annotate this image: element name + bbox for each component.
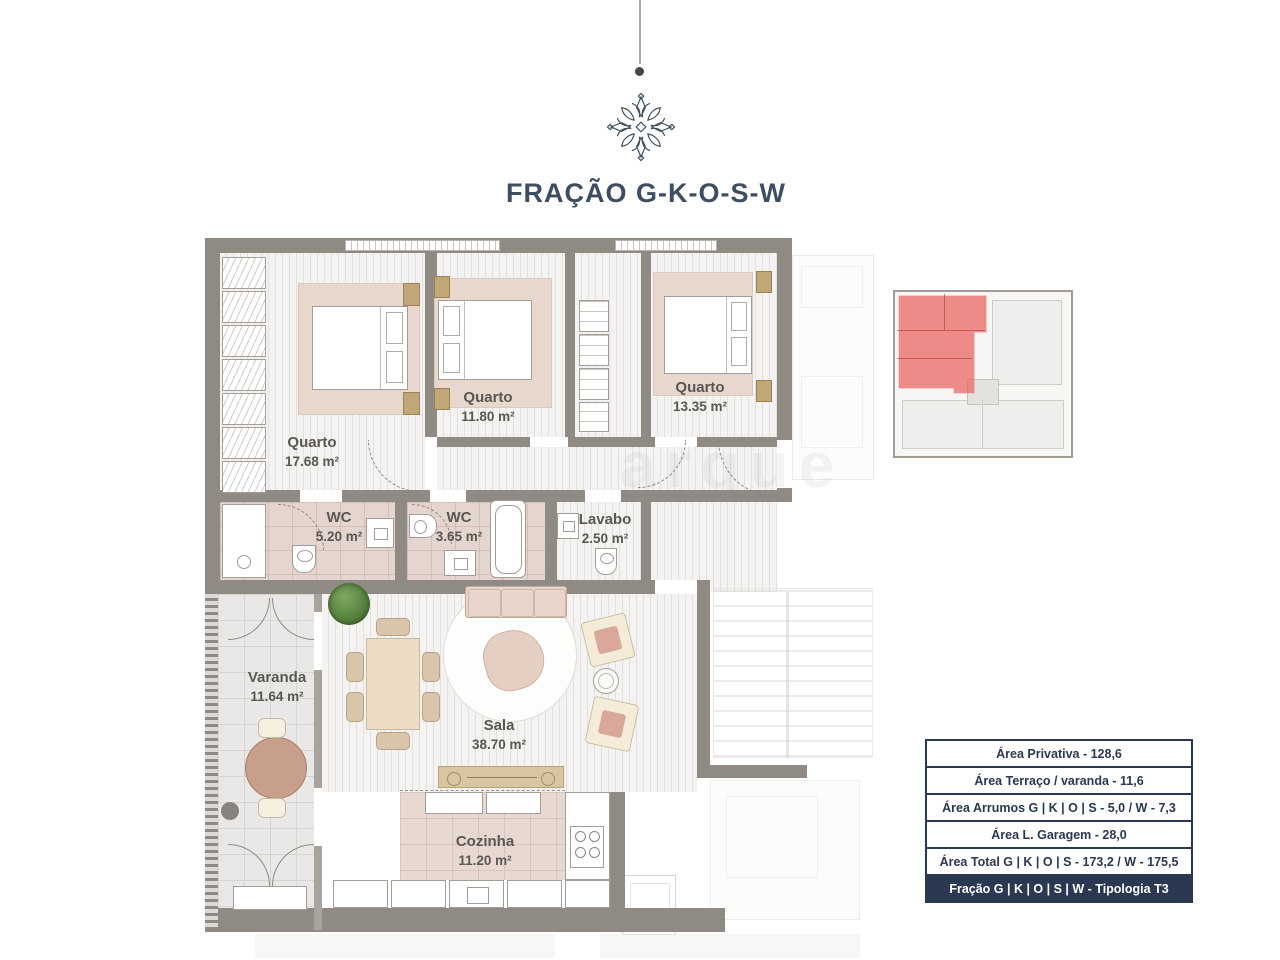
- armchair: [585, 696, 640, 753]
- key-plan-divider: [982, 400, 983, 449]
- wall-closet-left: [565, 253, 575, 437]
- vanity: [444, 550, 476, 576]
- room-name: Quarto: [287, 434, 336, 451]
- entry-hall-floor: [651, 502, 777, 592]
- room-label-cozinha: Cozinha 11.20 m²: [425, 832, 545, 870]
- dining-chair: [376, 618, 410, 636]
- dining-chair: [376, 732, 410, 750]
- chair: [258, 798, 286, 818]
- kitchen-counter: [565, 880, 610, 908]
- room-name: WC: [447, 509, 472, 526]
- side-table: [593, 668, 619, 694]
- room-label-quarto-2: Quarto 11.80 m²: [438, 388, 538, 426]
- key-plan-highlight-line: [897, 330, 985, 331]
- table-row: Área L. Garagem - 28,0: [925, 820, 1193, 849]
- room-label-wc2: WC 3.65 m²: [420, 508, 498, 546]
- wall-wc2-lavabo: [545, 502, 557, 592]
- bed: [438, 300, 532, 380]
- window-strip: [345, 240, 500, 251]
- wardrobe: [222, 393, 266, 425]
- room-area: 11.80 m²: [461, 409, 514, 424]
- area-table: Área Privativa - 128,6 Área Terraço / va…: [925, 741, 1193, 903]
- nightstand: [434, 276, 450, 298]
- key-plan-highlight-line: [944, 294, 945, 330]
- kitchen-cabinet: [486, 792, 541, 814]
- wall-right-lower: [697, 765, 807, 778]
- wardrobe: [222, 461, 266, 493]
- room-name: Cozinha: [456, 833, 514, 850]
- room-name: Quarto: [463, 389, 512, 406]
- room-name: Sala: [484, 717, 515, 734]
- dining-chair: [346, 692, 364, 722]
- room-area: 13.35 m²: [673, 399, 727, 414]
- room-name: Lavabo: [579, 511, 632, 528]
- wardrobe: [222, 359, 266, 391]
- room-label-varanda: Varanda 11.64 m²: [232, 668, 322, 706]
- room-name: Varanda: [248, 669, 306, 686]
- wall-wc1-wc2: [395, 502, 407, 592]
- adjacent-unit-sliver: [792, 255, 874, 480]
- window-strip: [615, 240, 717, 251]
- toilet: [595, 548, 617, 575]
- wall-left: [205, 238, 220, 594]
- table-row: Área Privativa - 128,6: [925, 739, 1193, 768]
- door-gap: [300, 490, 342, 502]
- kitchen-counter: [391, 880, 446, 908]
- wardrobe: [222, 427, 266, 459]
- adjacent-lower-faint: [710, 780, 860, 920]
- wardrobe: [222, 257, 266, 289]
- brochure-page: FRAÇÃO G-K-O-S-W: [0, 0, 1280, 960]
- nightstand: [756, 271, 772, 293]
- below-plan-faint: [255, 934, 555, 958]
- table-row: Área Terraço / varanda - 11,6: [925, 766, 1193, 795]
- room-label-quarto-3: Quarto 13.35 m²: [650, 378, 750, 416]
- kitchen-counter: [507, 880, 562, 908]
- nightstand: [756, 380, 772, 402]
- kitchen-cabinet: [425, 792, 483, 814]
- floral-ornament-icon: [606, 92, 676, 162]
- bed: [312, 306, 408, 390]
- stairwell-faint: [713, 588, 873, 758]
- room-area: 11.64 m²: [250, 689, 303, 704]
- closet-shelves: [579, 402, 609, 432]
- sofa: [465, 586, 567, 618]
- room-area: 3.65 m²: [436, 529, 483, 544]
- wall-sala-right: [697, 594, 710, 778]
- room-area: 11.20 m²: [458, 853, 511, 868]
- plant: [328, 583, 370, 625]
- wall-bottom: [205, 908, 725, 932]
- building-core-faint: [786, 592, 789, 758]
- page-title: FRAÇÃO G-K-O-S-W: [340, 178, 952, 209]
- kitchen-open-boundary: [400, 790, 565, 791]
- key-plan-unit-right: [992, 300, 1062, 385]
- sideboard: [438, 766, 564, 788]
- dining-chair: [422, 652, 440, 682]
- plumb-line: [639, 0, 641, 64]
- below-plan-faint-2: [600, 934, 860, 958]
- room-area: 2.50 m²: [582, 531, 629, 546]
- room-label-sala: Sala 38.70 m²: [449, 716, 549, 754]
- kitchen-counter: [333, 880, 388, 908]
- wardrobe: [222, 325, 266, 357]
- railing-post: [221, 802, 239, 820]
- nightstand: [403, 283, 420, 306]
- window-below-varanda: [233, 886, 307, 910]
- closet-shelves: [579, 334, 609, 366]
- nightstand: [403, 392, 420, 415]
- glass-door-gap: [314, 612, 322, 670]
- room-label-wc1: WC 5.20 m²: [300, 508, 378, 546]
- dining-chair: [346, 652, 364, 682]
- room-label-lavabo: Lavabo 2.50 m²: [566, 510, 644, 548]
- plumb-dot: [635, 67, 644, 76]
- chair: [258, 718, 286, 738]
- table-row: Área Arrumos G | K | O | S - 5,0 / W - 7…: [925, 793, 1193, 822]
- door-gap: [430, 490, 466, 502]
- entry-door-gap: [777, 440, 792, 488]
- room-area: 5.20 m²: [316, 529, 363, 544]
- door-gap: [655, 580, 697, 594]
- room-name: Quarto: [675, 379, 724, 396]
- building-key-plan: [893, 290, 1073, 458]
- bed: [664, 296, 752, 374]
- wall-kitchen-right: [610, 792, 625, 912]
- door-gap: [530, 437, 568, 447]
- dining-table: [366, 638, 420, 730]
- shower: [222, 504, 266, 578]
- dining-chair: [422, 692, 440, 722]
- key-plan-highlight-line: [897, 358, 973, 359]
- room-area: 17.68 m²: [285, 454, 339, 469]
- door-gap: [585, 490, 621, 502]
- room-label-quarto-1: Quarto 17.68 m²: [262, 433, 362, 471]
- closet-shelves: [579, 300, 609, 332]
- wardrobe: [222, 291, 266, 323]
- room-name: WC: [327, 509, 352, 526]
- kitchen-sink-counter: [449, 880, 504, 908]
- varanda-railing: [205, 594, 218, 930]
- table-row-highlight: Fração G | K | O | S | W - Tipologia T3: [925, 874, 1193, 903]
- glass-door-gap: [314, 788, 322, 846]
- room-area: 38.70 m²: [472, 737, 526, 752]
- stove: [570, 826, 604, 868]
- table-row: Área Total G | K | O | S - 173,2 / W - 1…: [925, 847, 1193, 876]
- closet-shelves: [579, 368, 609, 400]
- round-table: [245, 737, 307, 799]
